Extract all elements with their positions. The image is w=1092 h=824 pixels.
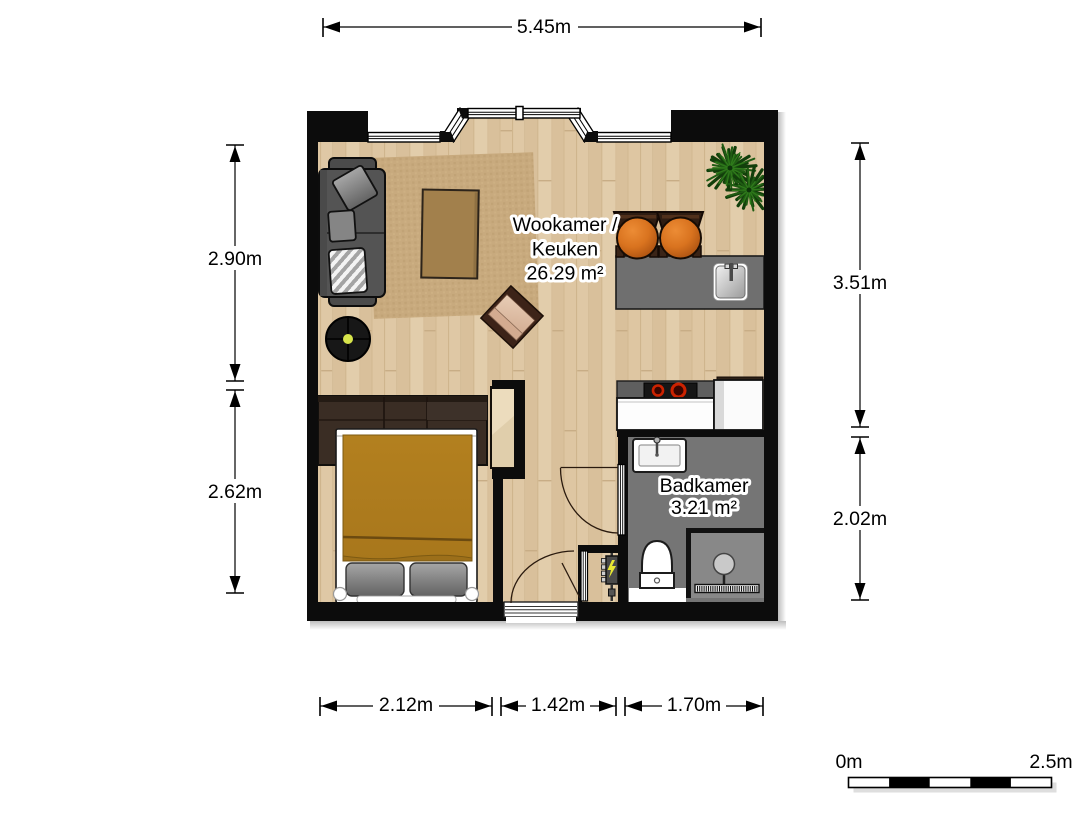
svg-text:2.5m: 2.5m	[1029, 751, 1072, 773]
svg-text:1.70m: 1.70m	[667, 694, 721, 716]
svg-text:Wookamer /: Wookamer /	[513, 214, 618, 236]
svg-text:3.21 m²: 3.21 m²	[671, 497, 738, 519]
svg-text:Keuken: Keuken	[532, 239, 598, 261]
svg-text:2.62m: 2.62m	[208, 481, 262, 503]
svg-text:2.90m: 2.90m	[208, 248, 262, 270]
svg-text:2.12m: 2.12m	[379, 694, 433, 716]
svg-text:26.29 m²: 26.29 m²	[527, 263, 604, 285]
svg-text:5.45m: 5.45m	[517, 16, 571, 38]
svg-text:2.02m: 2.02m	[833, 508, 887, 530]
svg-text:1.42m: 1.42m	[531, 694, 585, 716]
svg-text:3.51m: 3.51m	[833, 272, 887, 294]
svg-text:0m: 0m	[835, 751, 862, 773]
svg-text:Badkamer: Badkamer	[660, 475, 749, 497]
